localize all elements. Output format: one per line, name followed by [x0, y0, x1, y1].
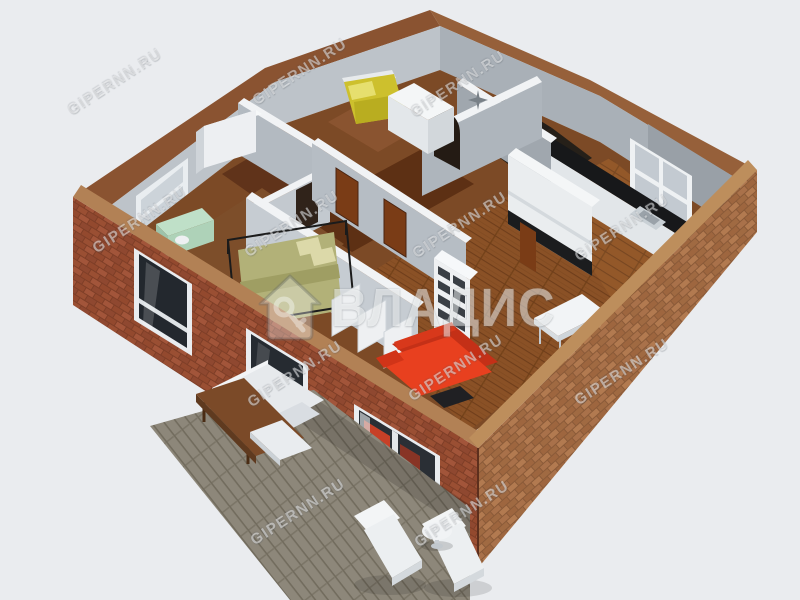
screenshot-canvas: GIPERNN.RU GIPERNN.RU GIPERNN.RU GIPERNN…: [0, 0, 800, 600]
table-base: [431, 543, 443, 549]
lounger-shadow: [354, 575, 426, 595]
table-top: [422, 522, 452, 540]
desk-chair: [175, 236, 189, 245]
floor-plan-3d-render: [0, 0, 800, 600]
side-table: [421, 522, 453, 551]
cabinet-side: [196, 126, 204, 174]
